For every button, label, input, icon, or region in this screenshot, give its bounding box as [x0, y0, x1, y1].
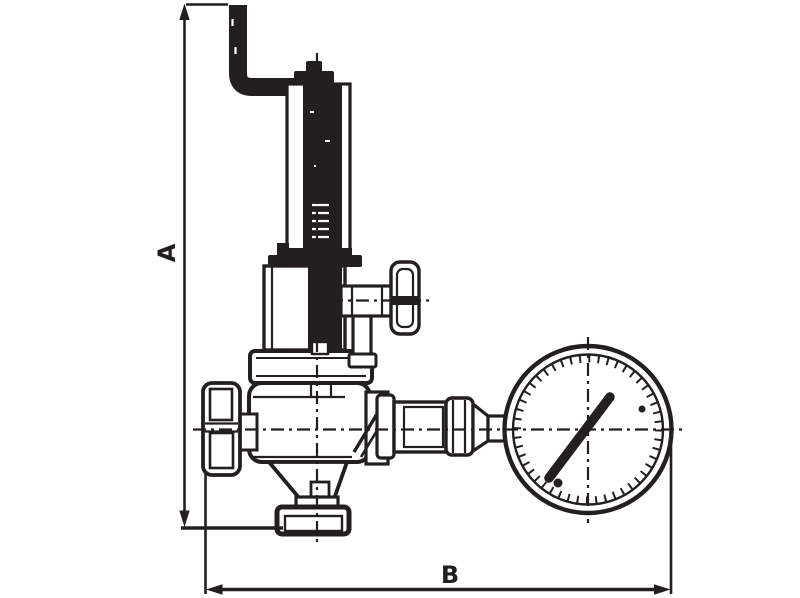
valve-technical-drawing: A B [0, 0, 800, 598]
spindle-cap [294, 71, 334, 85]
spring-housing [287, 61, 350, 255]
gauge-stop-pin [554, 479, 563, 488]
pipe-section [394, 402, 446, 452]
spindle-tip [312, 342, 328, 354]
hex-nut [446, 398, 473, 455]
gauge-dial-dot [639, 406, 646, 413]
spindle-nub [306, 61, 322, 73]
drawing-canvas: A B [0, 0, 800, 598]
dimension-a-label: A [153, 243, 181, 262]
bonnet [264, 266, 345, 351]
union-nut [377, 395, 394, 458]
valve-body [249, 383, 388, 464]
bottom-flange [277, 507, 349, 534]
dimension-b-label: B [441, 561, 459, 589]
